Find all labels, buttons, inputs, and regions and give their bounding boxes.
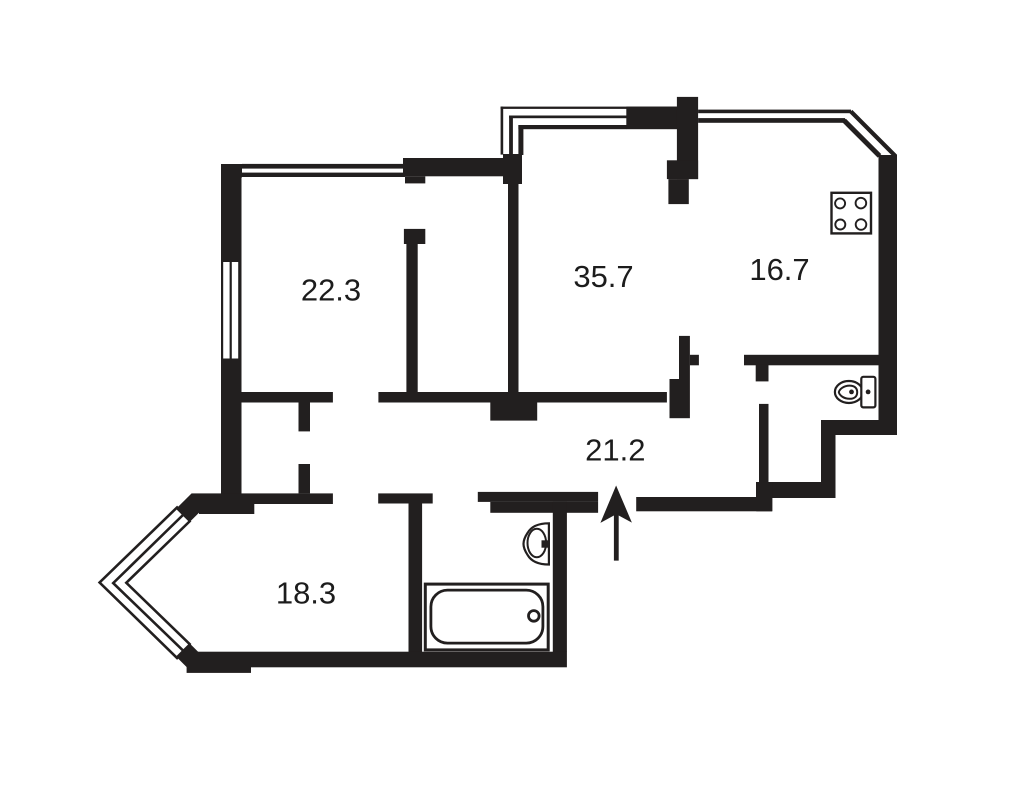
svg-text:16.7: 16.7 [749, 252, 809, 287]
svg-text:21.2: 21.2 [585, 433, 645, 468]
svg-text:35.7: 35.7 [573, 259, 633, 294]
svg-text:18.3: 18.3 [276, 576, 336, 611]
svg-text:22.3: 22.3 [301, 273, 361, 308]
